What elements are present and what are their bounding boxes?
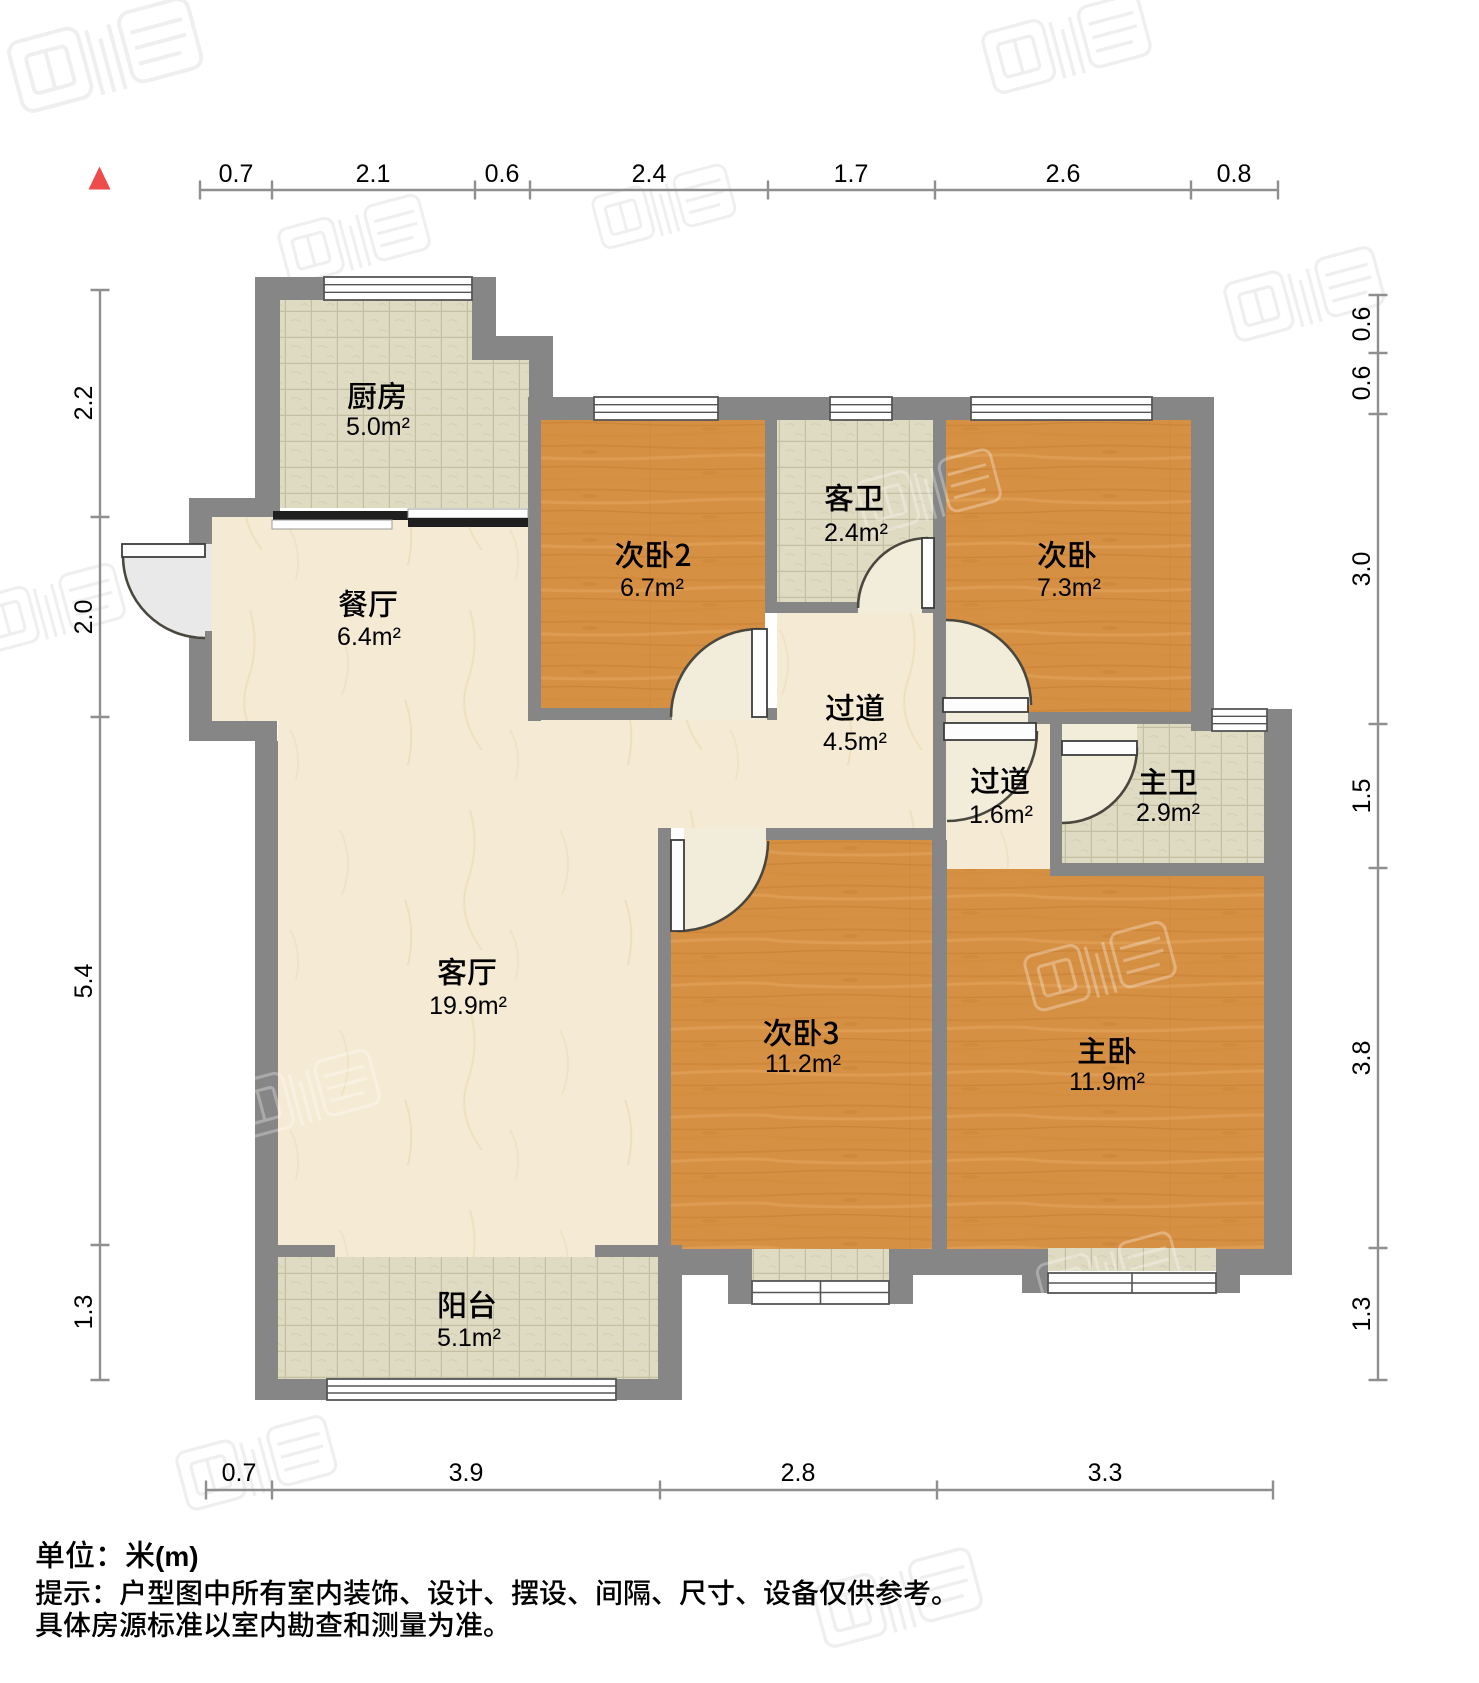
svg-text:2.4: 2.4 xyxy=(632,160,667,188)
svg-text:2.1: 2.1 xyxy=(356,160,391,188)
svg-text:1.7: 1.7 xyxy=(834,160,869,188)
svg-text:1.3: 1.3 xyxy=(1348,1297,1376,1332)
svg-text:2.2: 2.2 xyxy=(70,386,98,421)
svg-text:2.9m²: 2.9m² xyxy=(1136,799,1200,827)
svg-text:0.6: 0.6 xyxy=(1348,366,1376,401)
svg-text:0.6: 0.6 xyxy=(1348,307,1376,342)
svg-text:5.4: 5.4 xyxy=(70,964,98,999)
svg-text:2.8: 2.8 xyxy=(781,1459,816,1487)
svg-text:1.3: 1.3 xyxy=(70,1295,98,1330)
svg-text:11.9m²: 11.9m² xyxy=(1069,1068,1145,1096)
svg-text:(m): (m) xyxy=(155,1541,199,1572)
svg-text:0.8: 0.8 xyxy=(1217,160,1252,188)
svg-text:3.0: 3.0 xyxy=(1348,552,1376,587)
svg-text:3.8: 3.8 xyxy=(1348,1041,1376,1076)
svg-text:19.9m²: 19.9m² xyxy=(429,992,507,1020)
svg-text:0.7: 0.7 xyxy=(219,160,254,188)
svg-text:2.6: 2.6 xyxy=(1046,160,1081,188)
svg-text:5.0m²: 5.0m² xyxy=(346,413,410,441)
svg-text:5.1m²: 5.1m² xyxy=(437,1324,501,1352)
svg-text:7.3m²: 7.3m² xyxy=(1037,574,1101,602)
svg-text:2.0: 2.0 xyxy=(70,600,98,635)
svg-text:0.7: 0.7 xyxy=(222,1459,257,1487)
svg-text:1.5: 1.5 xyxy=(1348,779,1376,814)
svg-text:4.5m²: 4.5m² xyxy=(823,728,887,756)
svg-text:6.7m²: 6.7m² xyxy=(620,574,684,602)
svg-text:6.4m²: 6.4m² xyxy=(337,623,401,651)
svg-text:3.9: 3.9 xyxy=(449,1459,484,1487)
svg-text:2.4m²: 2.4m² xyxy=(824,519,888,547)
svg-text:1.6m²: 1.6m² xyxy=(969,801,1033,829)
svg-text:11.2m²: 11.2m² xyxy=(765,1050,841,1078)
svg-text:3.3: 3.3 xyxy=(1088,1459,1123,1487)
svg-text:0.6: 0.6 xyxy=(485,160,520,188)
